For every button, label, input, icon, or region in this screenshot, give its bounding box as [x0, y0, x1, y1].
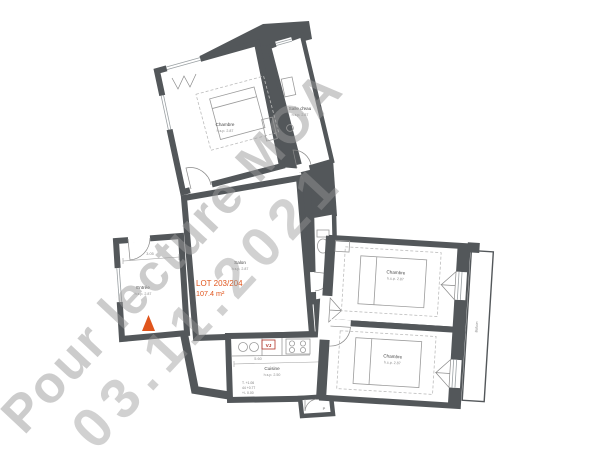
floor-plan-svg: Chambre h.s.p. 2.87 Salle d'eau h.s.p. 2… [0, 0, 600, 450]
level-annotation-1: T. +1.06 [242, 381, 254, 385]
right-block: Chambre h.s.p. 2.87 Chambre h.s.p. 2.87 … [314, 234, 494, 410]
vj-label: VJ [266, 343, 272, 349]
room-label-balcon: Balcon [474, 321, 479, 332]
room-label-chambre-tl: Chambre [216, 122, 235, 127]
dim-cuisine-label: 5.60 [254, 357, 261, 361]
floor-plan-page: Chambre h.s.p. 2.87 Salle d'eau h.s.p. 2… [0, 0, 600, 450]
room-hsp-cuisine: h.s.p. 2.50 [264, 373, 281, 377]
room-label-cuisine: Cuisine [264, 366, 280, 371]
level-annotation-2: 44 +0.77 [242, 386, 255, 390]
level-annotation-3: +/- 0.00 [242, 391, 254, 395]
door-p-label: P [323, 406, 326, 411]
room-hsp-chambre-tl: h.s.p. 2.87 [217, 129, 234, 133]
